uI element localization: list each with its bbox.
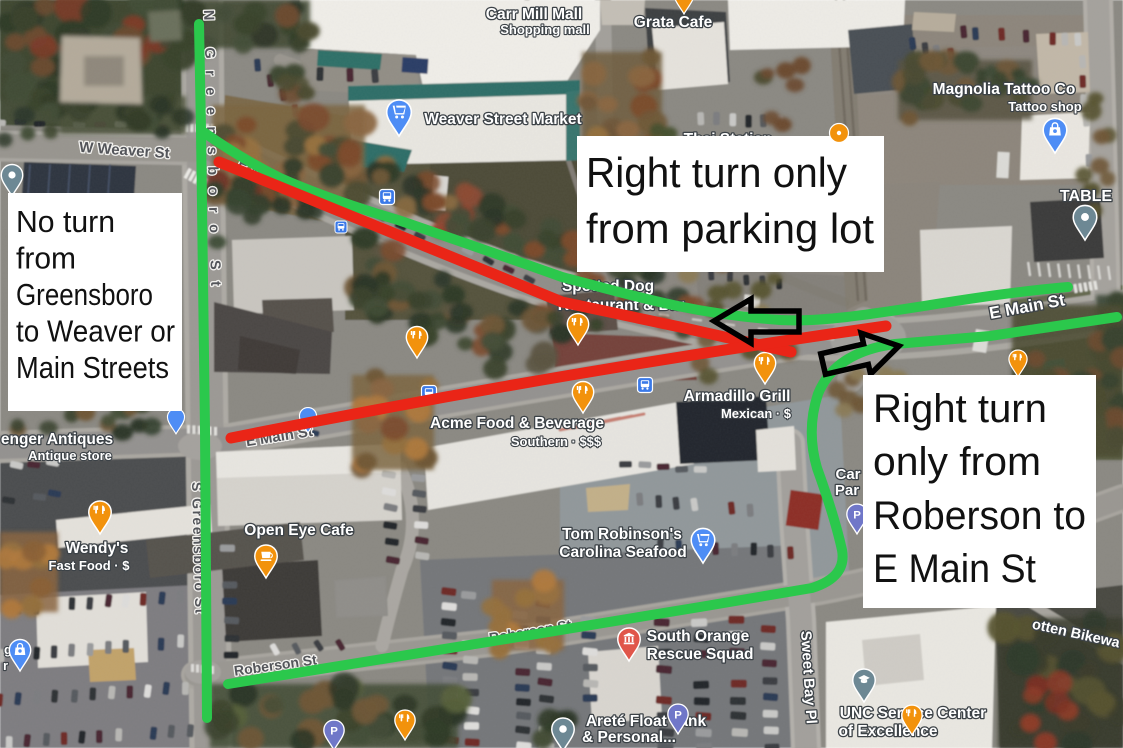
svg-text:P: P — [330, 725, 338, 737]
svg-text:No turn: No turn — [16, 204, 115, 239]
svg-text:P: P — [674, 709, 682, 721]
svg-text:TABLE: TABLE — [1060, 188, 1112, 205]
svg-text:Magnolia Tattoo Co: Magnolia Tattoo Co — [933, 81, 1076, 98]
svg-text:r: r — [3, 658, 8, 673]
svg-text:P: P — [853, 509, 861, 521]
svg-text:from parking lot: from parking lot — [586, 205, 874, 252]
svg-text:Tattoo shop: Tattoo shop — [1008, 99, 1081, 114]
svg-text:enger Antiques: enger Antiques — [1, 431, 113, 448]
svg-text:Par: Par — [835, 482, 859, 499]
svg-text:Carolina Seafood: Carolina Seafood — [559, 544, 686, 561]
svg-text:Acme Food & Beverage: Acme Food & Beverage — [430, 415, 604, 432]
svg-text:of Excellence: of Excellence — [838, 723, 937, 740]
svg-text:Greensboro: Greensboro — [16, 277, 153, 312]
svg-text:Open Eye Cafe: Open Eye Cafe — [244, 522, 354, 539]
svg-text:Main Streets: Main Streets — [16, 350, 169, 385]
svg-text:Armadillo Grill: Armadillo Grill — [684, 388, 791, 405]
svg-text:Wendy's: Wendy's — [66, 540, 129, 557]
svg-text:Shopping mall: Shopping mall — [500, 22, 590, 37]
svg-text:Weaver Street Market: Weaver Street Market — [424, 111, 581, 128]
svg-text:Car: Car — [835, 466, 860, 483]
svg-text:from: from — [16, 241, 76, 276]
svg-text:E Main St: E Main St — [873, 547, 1036, 591]
svg-text:Mexican · $: Mexican · $ — [721, 406, 792, 421]
svg-text:& Personal...: & Personal... — [582, 729, 676, 746]
svg-text:South Orange: South Orange — [647, 628, 750, 645]
svg-text:Antique store: Antique store — [28, 448, 112, 463]
svg-text:Tom Robinson's: Tom Robinson's — [562, 526, 682, 543]
svg-text:Roberson to: Roberson to — [873, 494, 1086, 538]
svg-text:Right turn: Right turn — [873, 387, 1047, 431]
svg-text:Fast Food · $: Fast Food · $ — [49, 558, 131, 573]
svg-text:Right turn only: Right turn only — [586, 149, 847, 196]
svg-text:to Weaver or: to Weaver or — [16, 314, 175, 349]
svg-text:Grata Cafe: Grata Cafe — [634, 14, 713, 31]
svg-text:Carr Mill Mall: Carr Mill Mall — [486, 6, 582, 23]
svg-text:only from: only from — [873, 440, 1041, 484]
svg-text:Southern · $$$: Southern · $$$ — [511, 434, 602, 449]
svg-text:Rescue Squad: Rescue Squad — [647, 646, 754, 663]
